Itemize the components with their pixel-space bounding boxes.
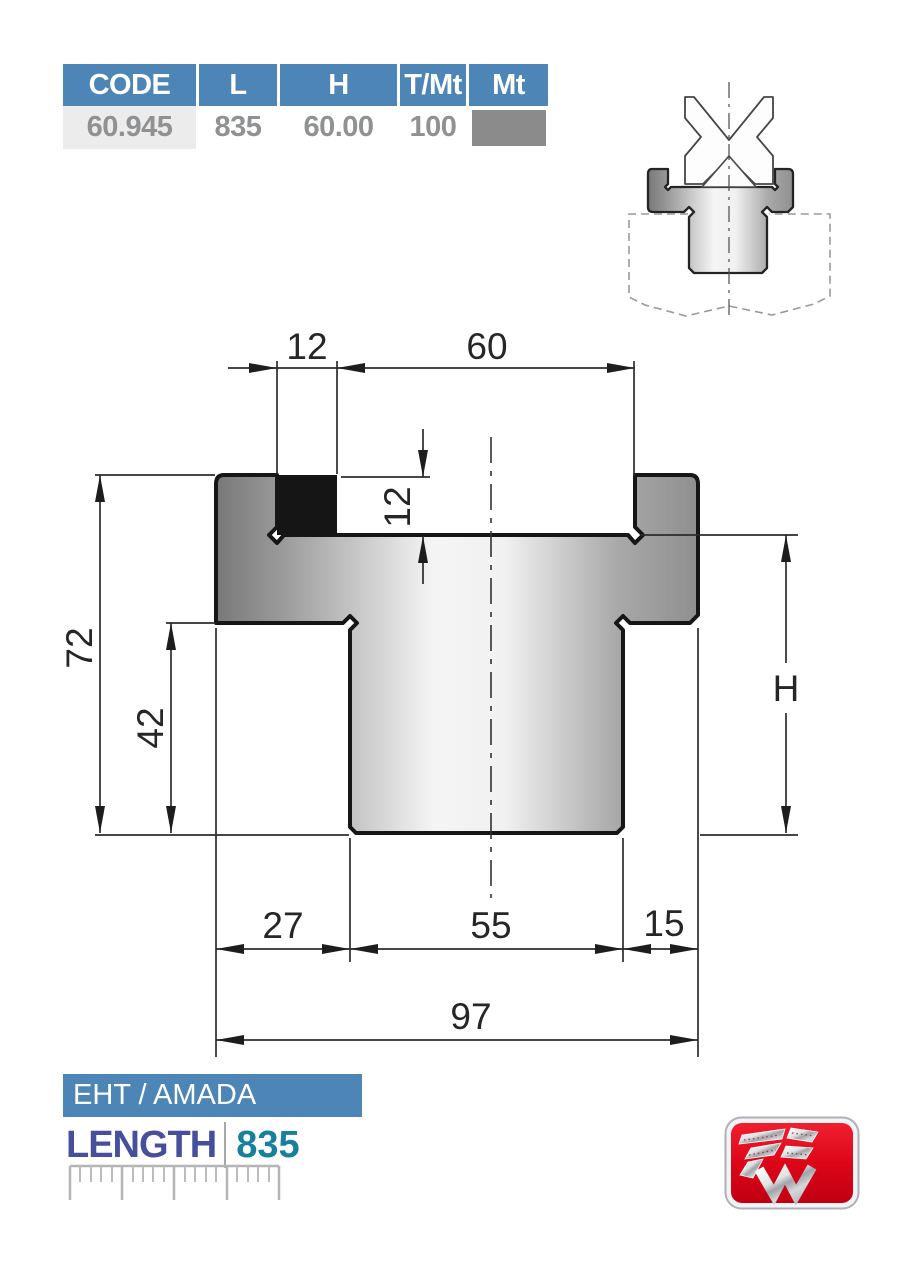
arrow xyxy=(418,450,428,477)
arrow xyxy=(595,944,623,954)
dim-label-groove-width: 60 xyxy=(466,326,507,367)
arrow xyxy=(322,944,350,954)
dim-label-body-height: H xyxy=(773,668,800,709)
arrow xyxy=(166,623,176,650)
dim-label-bottom-right: 15 xyxy=(643,903,684,944)
dim-label-bottom-left: 27 xyxy=(262,905,303,946)
arrow xyxy=(350,944,378,954)
dim-label-total-height: 72 xyxy=(59,627,100,668)
arrow xyxy=(337,363,365,373)
brand-text: EHT / AMADA xyxy=(63,1079,256,1112)
ruler-icon xyxy=(68,1160,283,1204)
arrow xyxy=(166,806,176,833)
dim-label-stem-height: 42 xyxy=(130,707,171,748)
arrow xyxy=(216,944,244,954)
assembly-thumbnail xyxy=(629,82,830,318)
arrow xyxy=(95,806,105,833)
arrow xyxy=(781,806,791,833)
arrow xyxy=(216,1035,244,1045)
dim-label-total-width: 97 xyxy=(450,996,491,1037)
arrow xyxy=(670,1035,698,1045)
tsw-logo-icon xyxy=(724,1116,860,1210)
arrow xyxy=(623,944,651,954)
tang-black-square xyxy=(277,475,337,535)
dim-label-stem-width: 55 xyxy=(470,905,511,946)
arrow xyxy=(670,944,698,954)
dim-label-groove-depth: 12 xyxy=(377,486,418,527)
dim-label-groove-offset: 12 xyxy=(286,326,327,367)
arrow xyxy=(607,363,635,373)
arrow xyxy=(249,363,277,373)
arrow xyxy=(95,475,105,502)
arrow xyxy=(781,535,791,562)
main-section-view xyxy=(216,437,698,898)
brand-banner: EHT / AMADA xyxy=(63,1074,362,1117)
